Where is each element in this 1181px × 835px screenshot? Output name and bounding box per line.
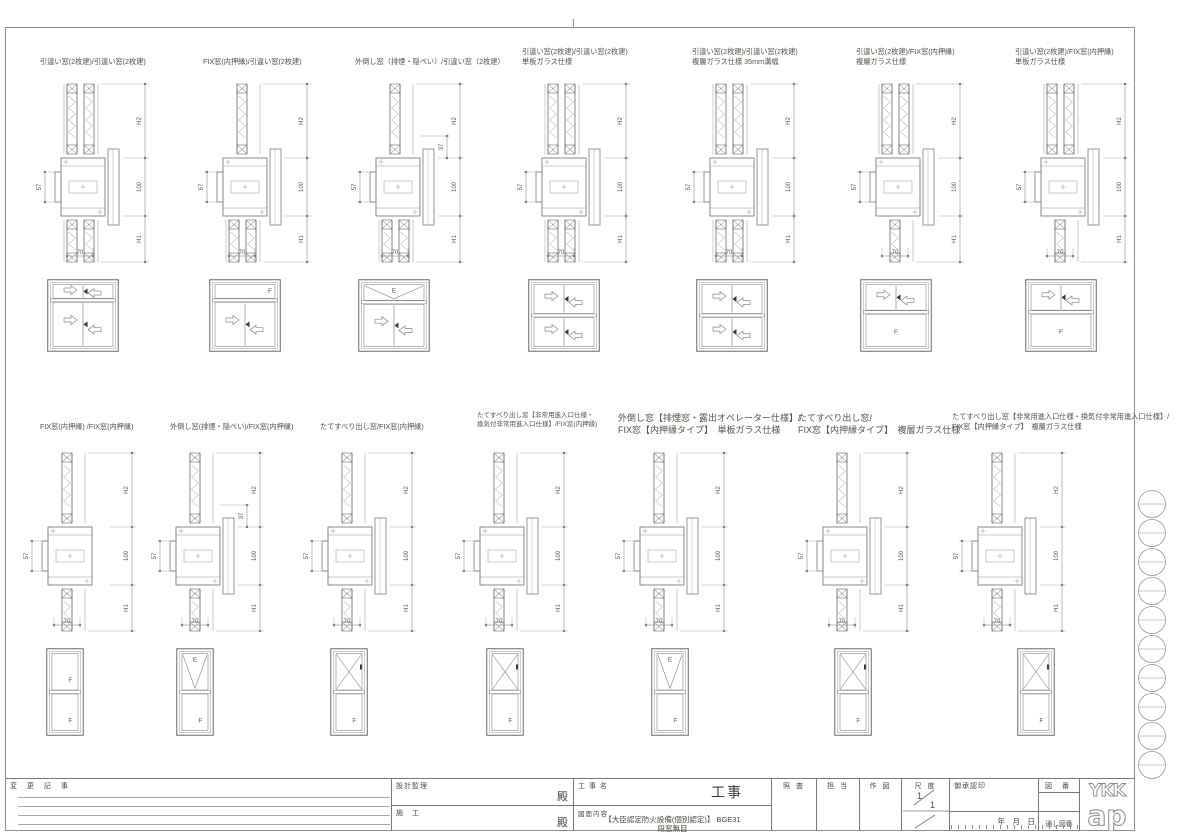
window-type-label: FIX窓(内押縁) /FIX窓(内押縁) bbox=[40, 422, 133, 432]
draft-cell: 作 図 bbox=[859, 779, 901, 831]
svg-text:70: 70 bbox=[726, 250, 733, 256]
svg-text:57: 57 bbox=[199, 183, 205, 190]
approval-cell: 御承認印 bbox=[949, 779, 1038, 811]
section-drawing-bottom-5: 57H2100H170 bbox=[612, 449, 742, 637]
elevation-drawing-top-7: F bbox=[1025, 279, 1097, 352]
svg-text:57: 57 bbox=[799, 552, 805, 559]
section-drawing-bottom-6: 57H2100H170 bbox=[795, 449, 925, 637]
window-type-label: 引違い窓(2枚建)/FIX窓(内押縁)単板ガラス仕様 bbox=[1015, 47, 1114, 66]
design-supervision-cell: 設計監理 殿 bbox=[391, 779, 573, 805]
svg-text:H2: H2 bbox=[716, 486, 722, 494]
svg-text:57: 57 bbox=[686, 183, 692, 190]
svg-text:70: 70 bbox=[344, 619, 351, 625]
window-type-label: たてすべり出し窓/FIX窓【内押縁タイプ】 複層ガラス仕様 bbox=[798, 412, 960, 436]
svg-text:ap: ap bbox=[1088, 799, 1127, 831]
svg-text:H2: H2 bbox=[556, 486, 562, 494]
svg-text:F: F bbox=[856, 717, 860, 724]
svg-text:F: F bbox=[268, 288, 272, 295]
svg-text:100: 100 bbox=[618, 181, 624, 192]
construction-cell: 施 工 殿 bbox=[391, 805, 573, 831]
svg-text:37: 37 bbox=[439, 143, 445, 150]
window-type-label: たてすべり出し窓【非常用進入口仕様・換気付非常用進入口仕様】/FIX窓【内押縁タ… bbox=[952, 412, 1169, 431]
svg-text:100: 100 bbox=[404, 550, 410, 561]
section-drawing-bottom-4: 57H2100H170 bbox=[452, 449, 582, 637]
top-center-tick bbox=[573, 19, 574, 28]
section-drawing-top-7: 57H2100H170 bbox=[1013, 80, 1143, 266]
svg-text:57: 57 bbox=[304, 552, 310, 559]
approval-label: 御承認印 bbox=[954, 781, 986, 791]
svg-text:100: 100 bbox=[556, 550, 562, 561]
check-cell: 照 査 bbox=[771, 779, 816, 831]
svg-text:H2: H2 bbox=[786, 117, 792, 125]
svg-text:70: 70 bbox=[892, 250, 899, 256]
svg-text:H2: H2 bbox=[299, 117, 305, 125]
title-block: 変 更 記 事 設計監理 殿 施 工 殿 工 事 名 工事 図面内容 【大臣認定… bbox=[6, 778, 1135, 830]
elevation-drawing-top-3: E bbox=[358, 279, 430, 352]
divider bbox=[1039, 792, 1079, 793]
ruled-line bbox=[18, 815, 390, 816]
svg-text:70: 70 bbox=[1057, 250, 1064, 256]
window-type-label: 外倒し窓（排煙・隠ぺい）/引違い窓（2枚建） bbox=[355, 57, 505, 67]
section-drawing-top-2: 57H2100H170 bbox=[195, 80, 325, 266]
charge-cell: 担 当 bbox=[816, 779, 859, 831]
elevation-drawing-top-5 bbox=[696, 279, 768, 352]
drawing-sheet: 引違い窓(2枚建)/引違い窓(2枚建)57H2100H170FIX窓(内押縁)/… bbox=[0, 0, 1181, 835]
window-type-label: 引違い窓(2枚建)/引違い窓(2枚建)単板ガラス仕様 bbox=[522, 47, 628, 66]
svg-text:F: F bbox=[673, 717, 677, 724]
elevation-drawing-top-1 bbox=[47, 279, 119, 352]
elevation-drawing-bottom-1: FF bbox=[46, 648, 84, 736]
svg-text:70: 70 bbox=[839, 619, 846, 625]
section-drawing-top-5: 57H2100H170 bbox=[682, 80, 812, 266]
section-drawing-top-1: 57H2100H170 bbox=[33, 80, 163, 266]
project-name-value: 工事 bbox=[711, 782, 743, 802]
project-name-label: 工 事 名 bbox=[578, 781, 608, 791]
svg-text:100: 100 bbox=[1054, 550, 1060, 561]
svg-text:H2: H2 bbox=[124, 486, 130, 494]
section-drawing-top-6: 57H2100H170 bbox=[848, 80, 978, 266]
svg-text:F: F bbox=[1059, 329, 1063, 336]
section-drawing-top-4: 57H2100H170 bbox=[514, 80, 644, 266]
svg-text:70: 70 bbox=[77, 250, 84, 256]
svg-text:F: F bbox=[1039, 717, 1043, 724]
drawing-number-label: 図 番 bbox=[1039, 781, 1079, 791]
svg-text:H1: H1 bbox=[404, 604, 410, 612]
ruled-line bbox=[18, 797, 390, 798]
svg-text:100: 100 bbox=[1117, 181, 1123, 192]
logo-cell: YKK ap bbox=[1079, 779, 1135, 831]
svg-text:70: 70 bbox=[192, 619, 199, 625]
scale-cell: 尺 度 1 1 bbox=[901, 779, 949, 831]
svg-text:100: 100 bbox=[952, 181, 958, 192]
svg-text:70: 70 bbox=[656, 619, 663, 625]
svg-text:E: E bbox=[392, 288, 397, 295]
drawing-content-line2: 段窓無目 bbox=[574, 823, 771, 834]
svg-text:57: 57 bbox=[152, 552, 158, 559]
window-type-label: 引違い窓(2枚建)/FIX窓(内押縁)複層ガラス仕様 bbox=[856, 47, 955, 66]
section-drawing-bottom-7: 57H2100H170 bbox=[950, 449, 1080, 637]
svg-text:H1: H1 bbox=[1117, 235, 1123, 243]
svg-text:YKK: YKK bbox=[1088, 781, 1126, 801]
window-type-label: 外倒し窓【排煙窓・露出オペレーター仕様】/FIX窓【内押縁タイプ】 単板ガラス仕… bbox=[618, 412, 801, 436]
svg-text:57: 57 bbox=[24, 552, 30, 559]
window-type-label: 引違い窓(2枚建)/引違い窓(2枚建)複層ガラス仕様 35mm溝幅 bbox=[692, 47, 798, 66]
svg-text:H1: H1 bbox=[716, 604, 722, 612]
svg-text:100: 100 bbox=[899, 550, 905, 561]
svg-text:H1: H1 bbox=[899, 604, 905, 612]
svg-text:H2: H2 bbox=[137, 117, 143, 125]
svg-text:H2: H2 bbox=[1054, 486, 1060, 494]
svg-text:H1: H1 bbox=[786, 235, 792, 243]
svg-text:H1: H1 bbox=[556, 604, 562, 612]
svg-text:H1: H1 bbox=[124, 604, 130, 612]
svg-text:H1: H1 bbox=[299, 235, 305, 243]
svg-text:H2: H2 bbox=[404, 486, 410, 494]
svg-text:F: F bbox=[68, 717, 72, 724]
svg-text:H1: H1 bbox=[618, 235, 624, 243]
svg-text:70: 70 bbox=[64, 619, 71, 625]
elevation-drawing-bottom-4: F bbox=[486, 648, 524, 736]
svg-text:H2: H2 bbox=[1117, 117, 1123, 125]
svg-text:100: 100 bbox=[299, 181, 305, 192]
window-type-label: FIX窓(内押縁)/引違い窓(2枚建) bbox=[203, 57, 302, 67]
svg-text:E: E bbox=[193, 657, 198, 664]
project-name-cell: 工 事 名 工事 bbox=[573, 779, 771, 805]
svg-text:H1: H1 bbox=[137, 235, 143, 243]
elevation-drawing-top-4 bbox=[528, 279, 600, 352]
charge-label: 担 当 bbox=[817, 781, 859, 791]
change-notes-label: 変 更 記 事 bbox=[10, 781, 72, 791]
svg-text:57: 57 bbox=[37, 183, 43, 190]
section-drawing-bottom-1: 57H2100H170 bbox=[20, 449, 150, 637]
svg-text:100: 100 bbox=[137, 181, 143, 192]
svg-text:57: 57 bbox=[954, 552, 960, 559]
svg-text:1: 1 bbox=[930, 800, 935, 810]
svg-text:H1: H1 bbox=[252, 604, 258, 612]
window-type-label: たてすべり出し窓【非常用進入口仕様・換気付非常用進入口仕様】/FIX窓(内押縁) bbox=[477, 412, 597, 429]
design-supervision-dono: 殿 bbox=[557, 788, 568, 804]
window-type-label: 引違い窓(2枚建)/引違い窓(2枚建) bbox=[40, 57, 146, 67]
svg-text:100: 100 bbox=[716, 550, 722, 561]
svg-text:100: 100 bbox=[452, 181, 458, 192]
ruled-line bbox=[18, 824, 390, 825]
svg-text:70: 70 bbox=[239, 250, 246, 256]
svg-text:H1: H1 bbox=[1054, 604, 1060, 612]
svg-text:F: F bbox=[894, 329, 898, 336]
elevation-drawing-bottom-3: F bbox=[330, 648, 368, 736]
design-supervision-label: 設計監理 bbox=[396, 781, 428, 791]
svg-text:57: 57 bbox=[456, 552, 462, 559]
svg-text:70: 70 bbox=[392, 250, 399, 256]
svg-text:H1: H1 bbox=[452, 235, 458, 243]
svg-text:E: E bbox=[668, 657, 673, 664]
svg-text:57: 57 bbox=[1017, 183, 1023, 190]
svg-text:H2: H2 bbox=[452, 117, 458, 125]
svg-text:70: 70 bbox=[994, 619, 1001, 625]
svg-text:57: 57 bbox=[852, 183, 858, 190]
svg-text:H2: H2 bbox=[618, 117, 624, 125]
scale-value: 1 1 bbox=[902, 779, 950, 831]
ykk-ap-logo: YKK ap bbox=[1080, 779, 1134, 831]
construction-label: 施 工 bbox=[396, 808, 420, 818]
section-drawing-top-3: 57H2100H13770 bbox=[348, 80, 478, 266]
check-label: 照 査 bbox=[772, 781, 816, 791]
svg-text:F: F bbox=[198, 717, 202, 724]
section-drawing-bottom-3: 57H2100H170 bbox=[300, 449, 430, 637]
ruled-line bbox=[18, 806, 390, 807]
elevation-drawing-bottom-5: EF bbox=[651, 648, 689, 736]
svg-text:57: 57 bbox=[616, 552, 622, 559]
window-type-label: たてすべり出し窓/FIX窓(内押縁) bbox=[320, 422, 424, 432]
elevation-drawing-top-6: F bbox=[860, 279, 932, 352]
section-drawing-bottom-2: 57H2100H13770 bbox=[148, 449, 278, 637]
bottom-tick-marks bbox=[951, 825, 1079, 829]
svg-text:F: F bbox=[68, 677, 72, 684]
drawing-content-cell: 図面内容 【大臣認定防火設備(個別認定)】 BGE31 段窓無目 bbox=[573, 805, 771, 831]
svg-text:F: F bbox=[352, 717, 356, 724]
elevation-drawing-bottom-6: F bbox=[834, 648, 872, 736]
svg-text:H2: H2 bbox=[952, 117, 958, 125]
svg-text:H2: H2 bbox=[899, 486, 905, 494]
window-type-label: 外倒し窓(排煙・隠ぺい)/FIX窓(内押縁) bbox=[170, 422, 293, 432]
svg-text:H2: H2 bbox=[252, 486, 258, 494]
svg-text:H1: H1 bbox=[952, 235, 958, 243]
svg-text:37: 37 bbox=[239, 512, 245, 519]
elevation-drawing-bottom-7: F bbox=[1017, 648, 1055, 736]
svg-text:57: 57 bbox=[518, 183, 524, 190]
svg-text:70: 70 bbox=[496, 619, 503, 625]
elevation-drawing-top-2: F bbox=[209, 279, 281, 352]
svg-text:F: F bbox=[508, 717, 512, 724]
construction-dono: 殿 bbox=[557, 814, 568, 830]
svg-text:100: 100 bbox=[252, 550, 258, 561]
drawing-number-cell: 図 番 bbox=[1038, 779, 1079, 811]
svg-text:100: 100 bbox=[124, 550, 130, 561]
svg-text:70: 70 bbox=[558, 250, 565, 256]
elevation-drawing-bottom-2: EF bbox=[176, 648, 214, 736]
change-notes-cell: 変 更 記 事 bbox=[6, 779, 391, 831]
svg-text:100: 100 bbox=[786, 181, 792, 192]
approval-stamp-circles bbox=[1136, 489, 1168, 785]
draft-label: 作 図 bbox=[860, 781, 901, 791]
svg-text:57: 57 bbox=[352, 183, 358, 190]
